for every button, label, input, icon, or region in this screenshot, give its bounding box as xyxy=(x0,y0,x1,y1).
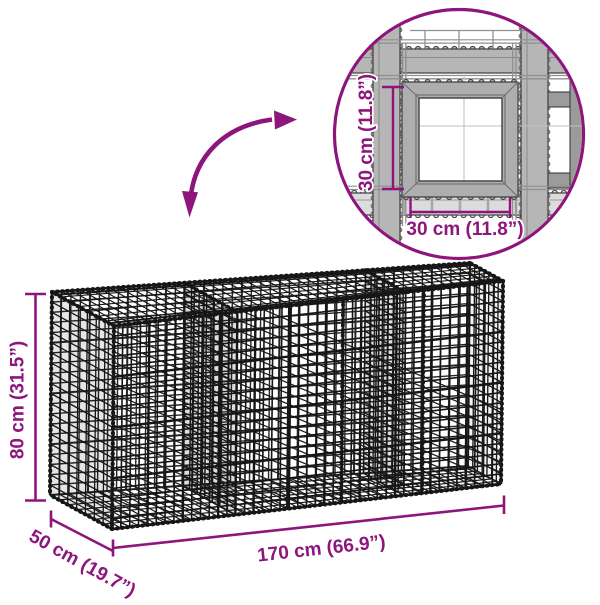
svg-text:80 cm (31.5”): 80 cm (31.5”) xyxy=(8,341,29,459)
svg-text:30 cm (11.8”): 30 cm (11.8”) xyxy=(406,219,523,240)
svg-text:30 cm (11.8”): 30 cm (11.8”) xyxy=(356,74,377,191)
